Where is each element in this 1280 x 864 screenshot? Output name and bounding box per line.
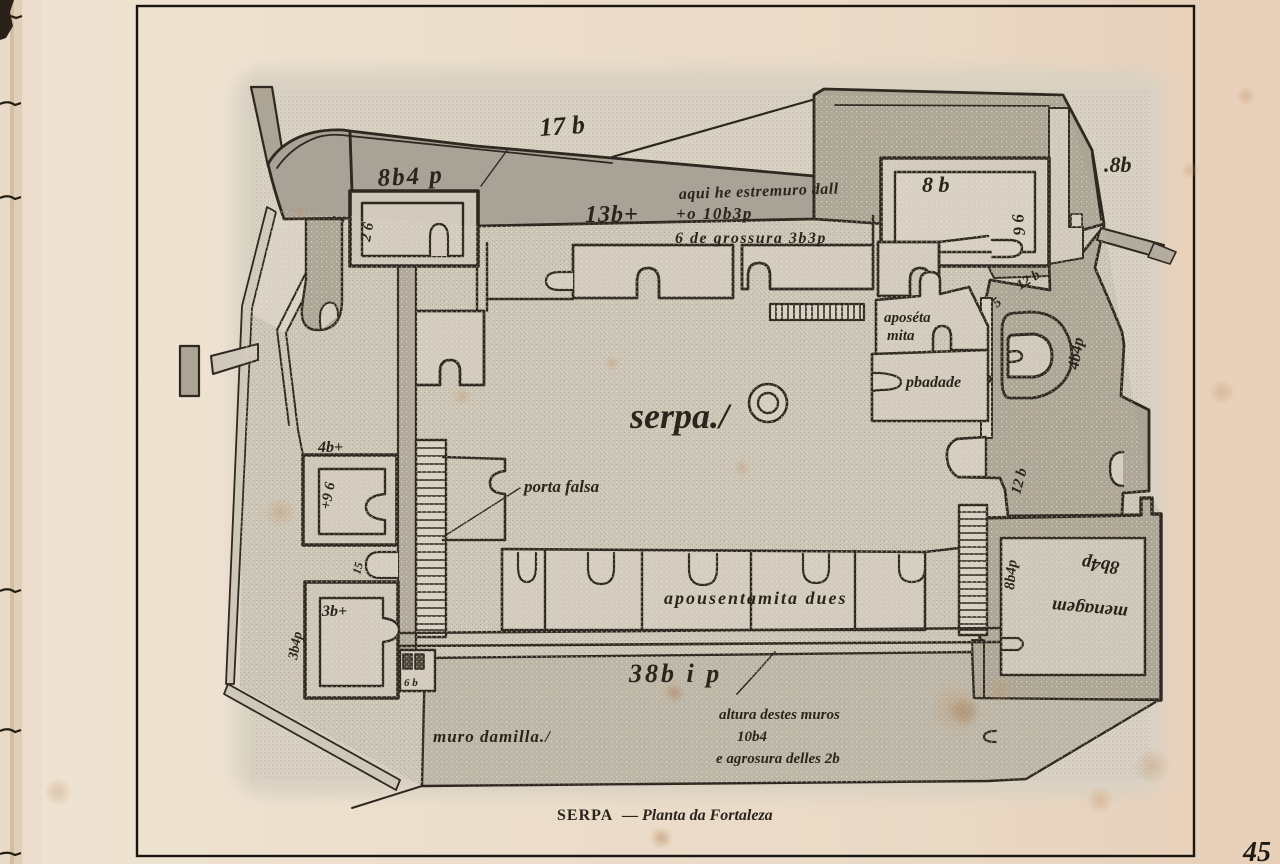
svg-text:8 b: 8 b — [922, 172, 950, 197]
svg-text:aposéta: aposéta — [884, 310, 931, 326]
svg-text:muro damilla./: muro damilla./ — [433, 727, 552, 746]
svg-text:Planta da Fortaleza: Planta da Fortaleza — [641, 807, 773, 824]
svg-text:4b+: 4b+ — [317, 439, 343, 456]
svg-text:porta falsa: porta falsa — [522, 477, 600, 496]
svg-text:+o 10b3p: +o 10b3p — [676, 204, 753, 223]
svg-text:17 b: 17 b — [538, 110, 585, 142]
svg-text:8b4p: 8b4p — [1002, 559, 1021, 591]
svg-text:altura destes muros: altura destes muros — [719, 707, 840, 723]
svg-text:—: — — [621, 807, 639, 824]
svg-text:9 6: 9 6 — [1008, 213, 1029, 236]
svg-text:10b4: 10b4 — [737, 729, 768, 745]
svg-text:mita: mita — [887, 328, 915, 344]
svg-text:e agrosura delles 2b: e agrosura delles 2b — [716, 751, 840, 767]
svg-text:pbadade: pbadade — [904, 374, 961, 391]
svg-text:6 b: 6 b — [404, 677, 418, 689]
svg-text:13b+: 13b+ — [585, 202, 639, 228]
svg-text:45: 45 — [1242, 837, 1271, 864]
svg-text:.8b: .8b — [1104, 152, 1132, 177]
svg-text:8b4 p: 8b4 p — [377, 162, 445, 192]
svg-text:6 de grossura 3b3p: 6 de grossura 3b3p — [675, 230, 827, 247]
svg-text:3b+: 3b+ — [321, 603, 347, 620]
svg-text:SERPA: SERPA — [557, 807, 613, 824]
svg-text:apousentamita dues: apousentamita dues — [664, 588, 848, 608]
svg-text:serpa./: serpa./ — [629, 396, 732, 436]
